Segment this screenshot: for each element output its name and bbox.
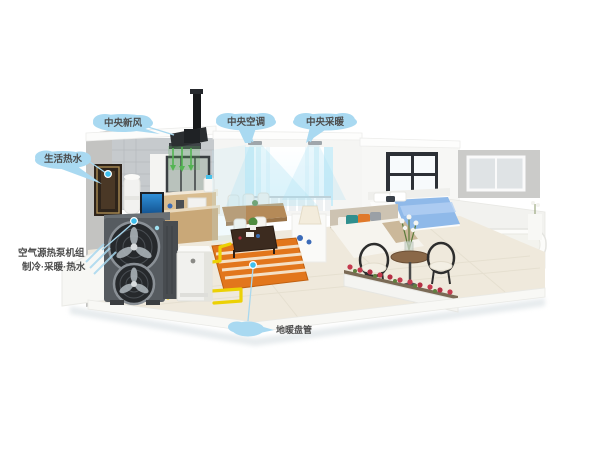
table-decor-blue	[256, 234, 260, 238]
plant-pot	[250, 225, 256, 230]
heat-pump-label-line2: 制冷·采暖·热水	[22, 261, 86, 273]
anchor-heat-pump	[131, 218, 138, 225]
indoor-tank-unit	[177, 246, 212, 301]
anchor-floor-heating	[250, 262, 257, 269]
fan-bottom	[114, 264, 154, 304]
unit-side-panel	[163, 221, 178, 299]
tank-top	[177, 246, 212, 252]
accent-pillow	[386, 196, 395, 202]
unit-foot	[110, 300, 124, 305]
gray-pillow	[370, 212, 381, 221]
callout-central-ac-label: 中央空调	[227, 116, 265, 128]
unit-foot	[146, 300, 160, 305]
living-room-roofline	[213, 131, 362, 140]
green-airflow-arrows	[170, 147, 194, 172]
hot-water-tank-cap	[124, 174, 140, 180]
callout-central-heating-label: 中央采暖	[306, 116, 345, 128]
brand-dot	[155, 226, 159, 230]
exhaust-duct	[193, 92, 201, 134]
blue-vase	[307, 240, 312, 245]
table-decor-red	[238, 236, 241, 239]
callout-hot-water-label: 生活热水	[44, 153, 83, 165]
blue-vase	[297, 235, 303, 241]
exhaust-duct-cap	[190, 89, 203, 94]
tank-vent	[180, 293, 208, 297]
table-books	[246, 232, 254, 237]
counter-decor	[168, 204, 173, 209]
heat-pump-label-line1: 空气源热泵机组	[18, 247, 85, 259]
tank-logo	[191, 259, 196, 264]
bistro-table-top	[391, 251, 429, 263]
callout-fresh-air-label: 中央新风	[104, 117, 143, 129]
scene-canvas: 中央新风 生活热水 中央空调 中央采暖 空气源热泵机组	[0, 0, 600, 450]
floor-heating-label: 地暖盘管	[276, 324, 312, 335]
heat-pump-outdoor-unit	[104, 212, 178, 305]
water-purifier-cap	[206, 175, 212, 179]
anchor-hot-water	[105, 171, 112, 178]
table-lamp-shade	[299, 206, 321, 224]
ventilation-unit-body	[184, 129, 200, 143]
bath-side-table	[528, 214, 542, 240]
window-light-wash	[212, 145, 246, 243]
hot-water-tank	[124, 176, 140, 214]
heat-pump-home-diagram: 中央新风 生活热水 中央空调 中央采暖 空气源热泵机组	[0, 0, 600, 450]
hot-water-tank-band	[124, 196, 140, 200]
